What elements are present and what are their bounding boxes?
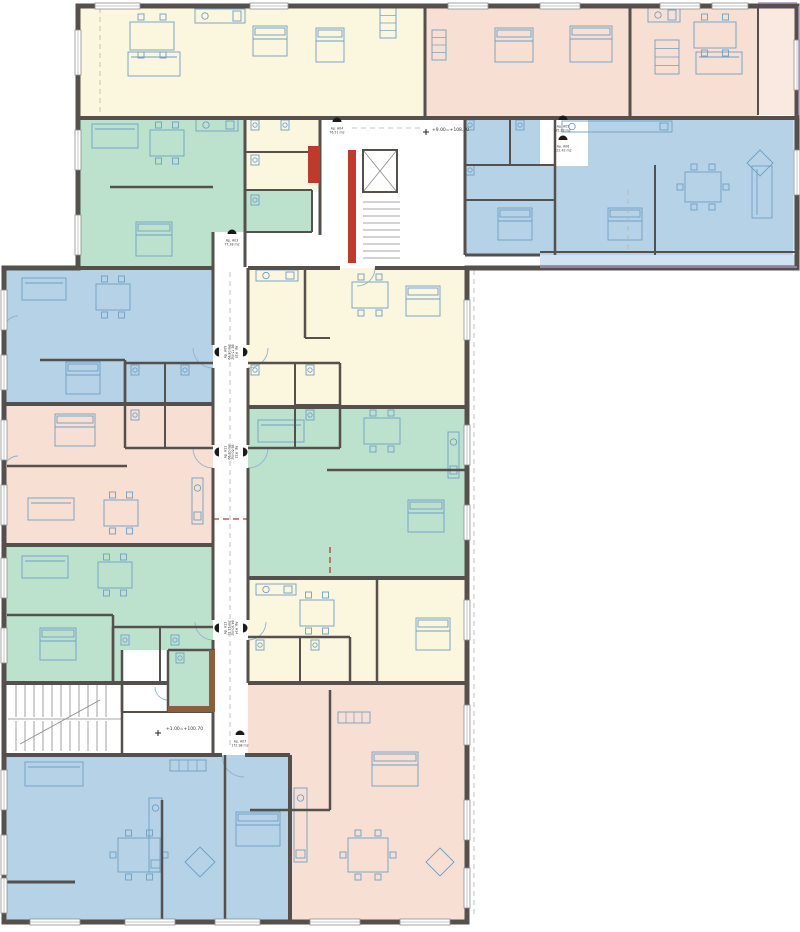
- unit-green-wing-right: [248, 407, 467, 578]
- unit-yellow-wing-bot: [248, 578, 467, 683]
- unit-blue-wing-bottom: [4, 755, 290, 922]
- floor-plan-drawing: +9.00=+108.70+1.00=+100.70Ap. A0377.38 m…: [0, 0, 800, 932]
- red-wall: [308, 146, 320, 183]
- floor-plan-page: +9.00=+108.70+1.00=+100.70Ap. A0377.38 m…: [0, 0, 800, 932]
- room-green-bath: [168, 650, 215, 712]
- unit-yellow-wing-top: [248, 268, 467, 407]
- room-green-small: [245, 190, 312, 232]
- unit-blue-top-right: [465, 118, 793, 255]
- balcony-pink-right: [758, 6, 797, 115]
- corridor-patch: [213, 232, 245, 268]
- apartment-area-label: 122.42 m2: [554, 149, 571, 153]
- apartment-area-label: 77.38 m2: [224, 243, 239, 247]
- apartment-area-label: 172.98 m2: [231, 744, 248, 748]
- brown-threshold: [209, 650, 215, 712]
- apartment-area-label: 88.75 m2: [231, 344, 235, 359]
- unit-blue-wing-top: [4, 268, 213, 404]
- elevation-label-0: +9.00=+108.70: [432, 127, 469, 133]
- apartment-area-label: 84.90 m2: [231, 620, 235, 635]
- apartment-area-label: 95.28 m2: [555, 129, 570, 133]
- brown-threshold: [168, 706, 215, 712]
- unit-pink-wing: [4, 404, 213, 545]
- red-wall: [348, 150, 356, 263]
- apartment-area-label: 76.51 m2: [329, 131, 344, 135]
- elevation-label-1: +1.00=+100.70: [166, 726, 203, 732]
- apartment-area-label: 98.60 m2: [231, 444, 235, 459]
